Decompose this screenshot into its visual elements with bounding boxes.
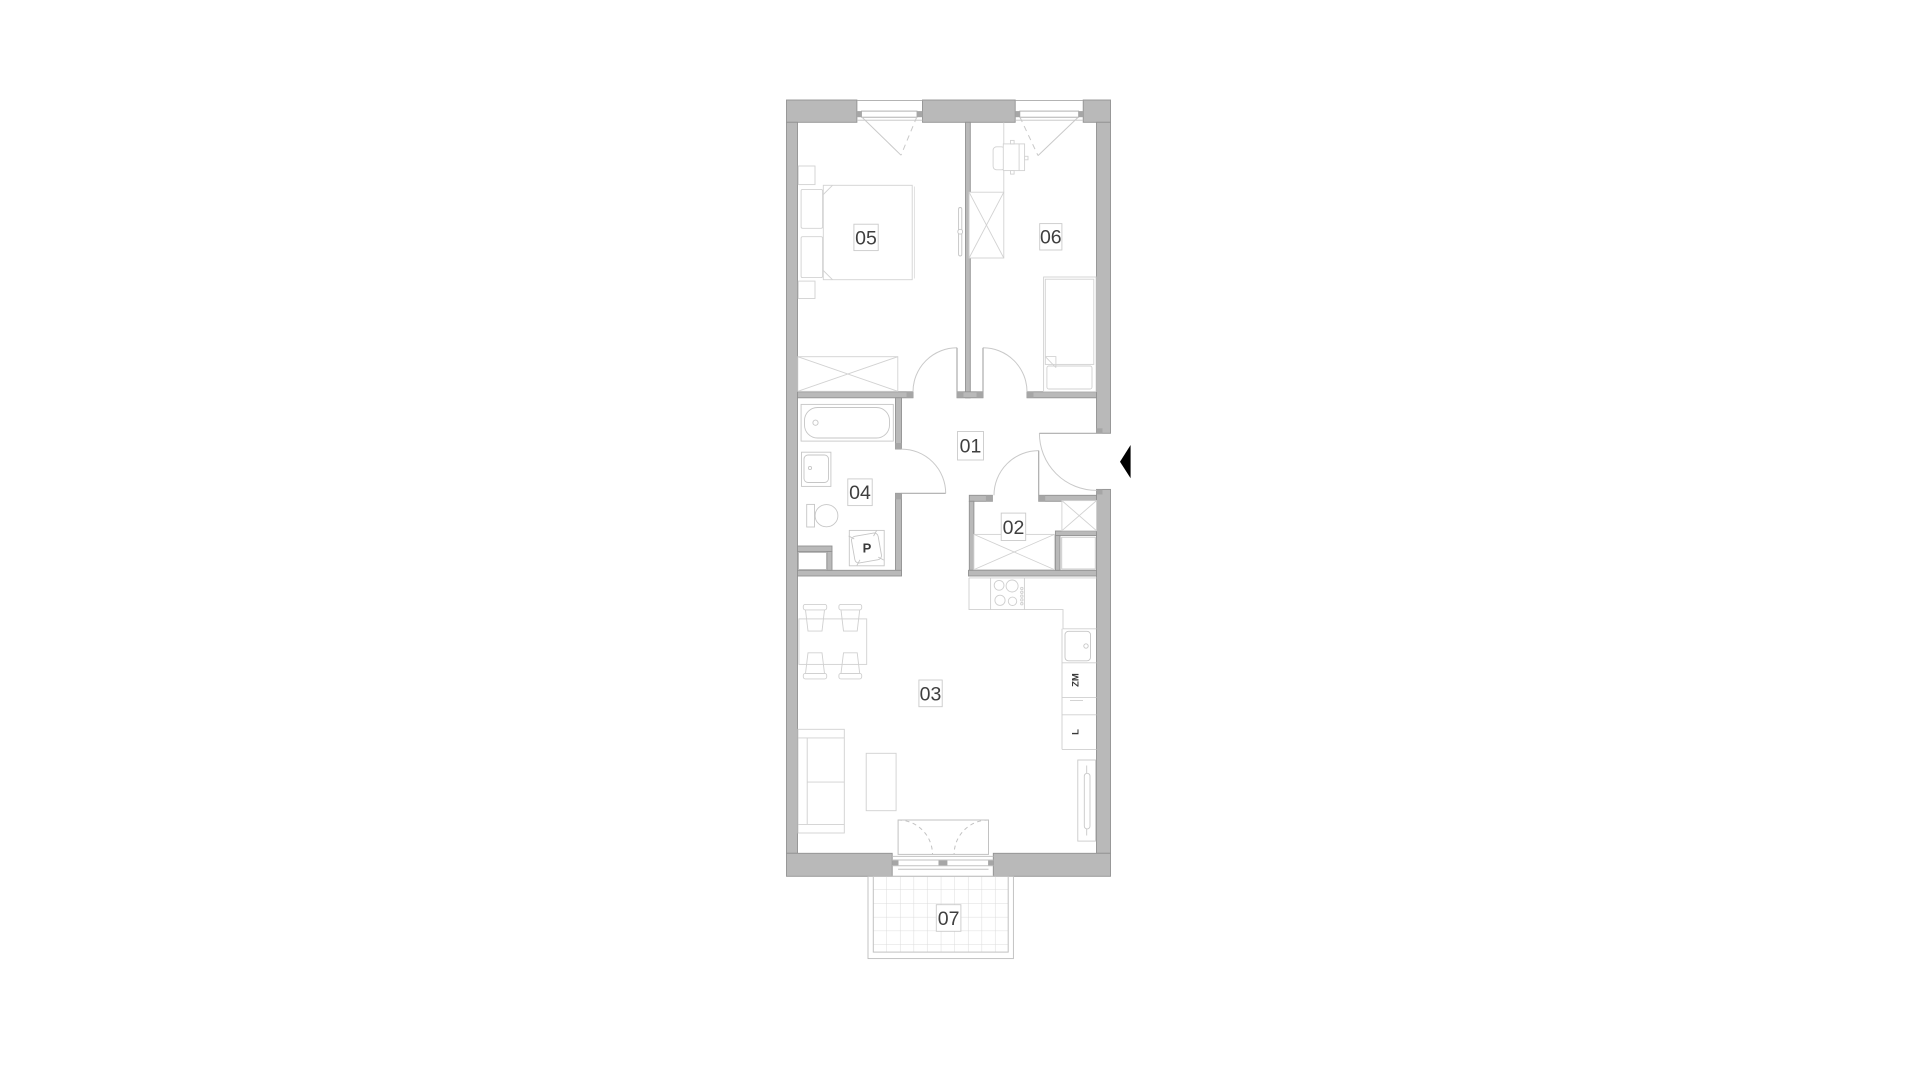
svg-text:05: 05 xyxy=(855,227,877,249)
svg-text:06: 06 xyxy=(1040,227,1062,249)
svg-text:02: 02 xyxy=(1003,517,1025,539)
svg-text:04: 04 xyxy=(849,482,871,504)
svg-text:L: L xyxy=(1071,729,1082,735)
svg-text:01: 01 xyxy=(960,436,982,458)
svg-text:03: 03 xyxy=(920,683,942,705)
svg-text:07: 07 xyxy=(938,908,960,930)
svg-text:ZM: ZM xyxy=(1071,673,1082,687)
svg-text:P: P xyxy=(863,541,872,556)
